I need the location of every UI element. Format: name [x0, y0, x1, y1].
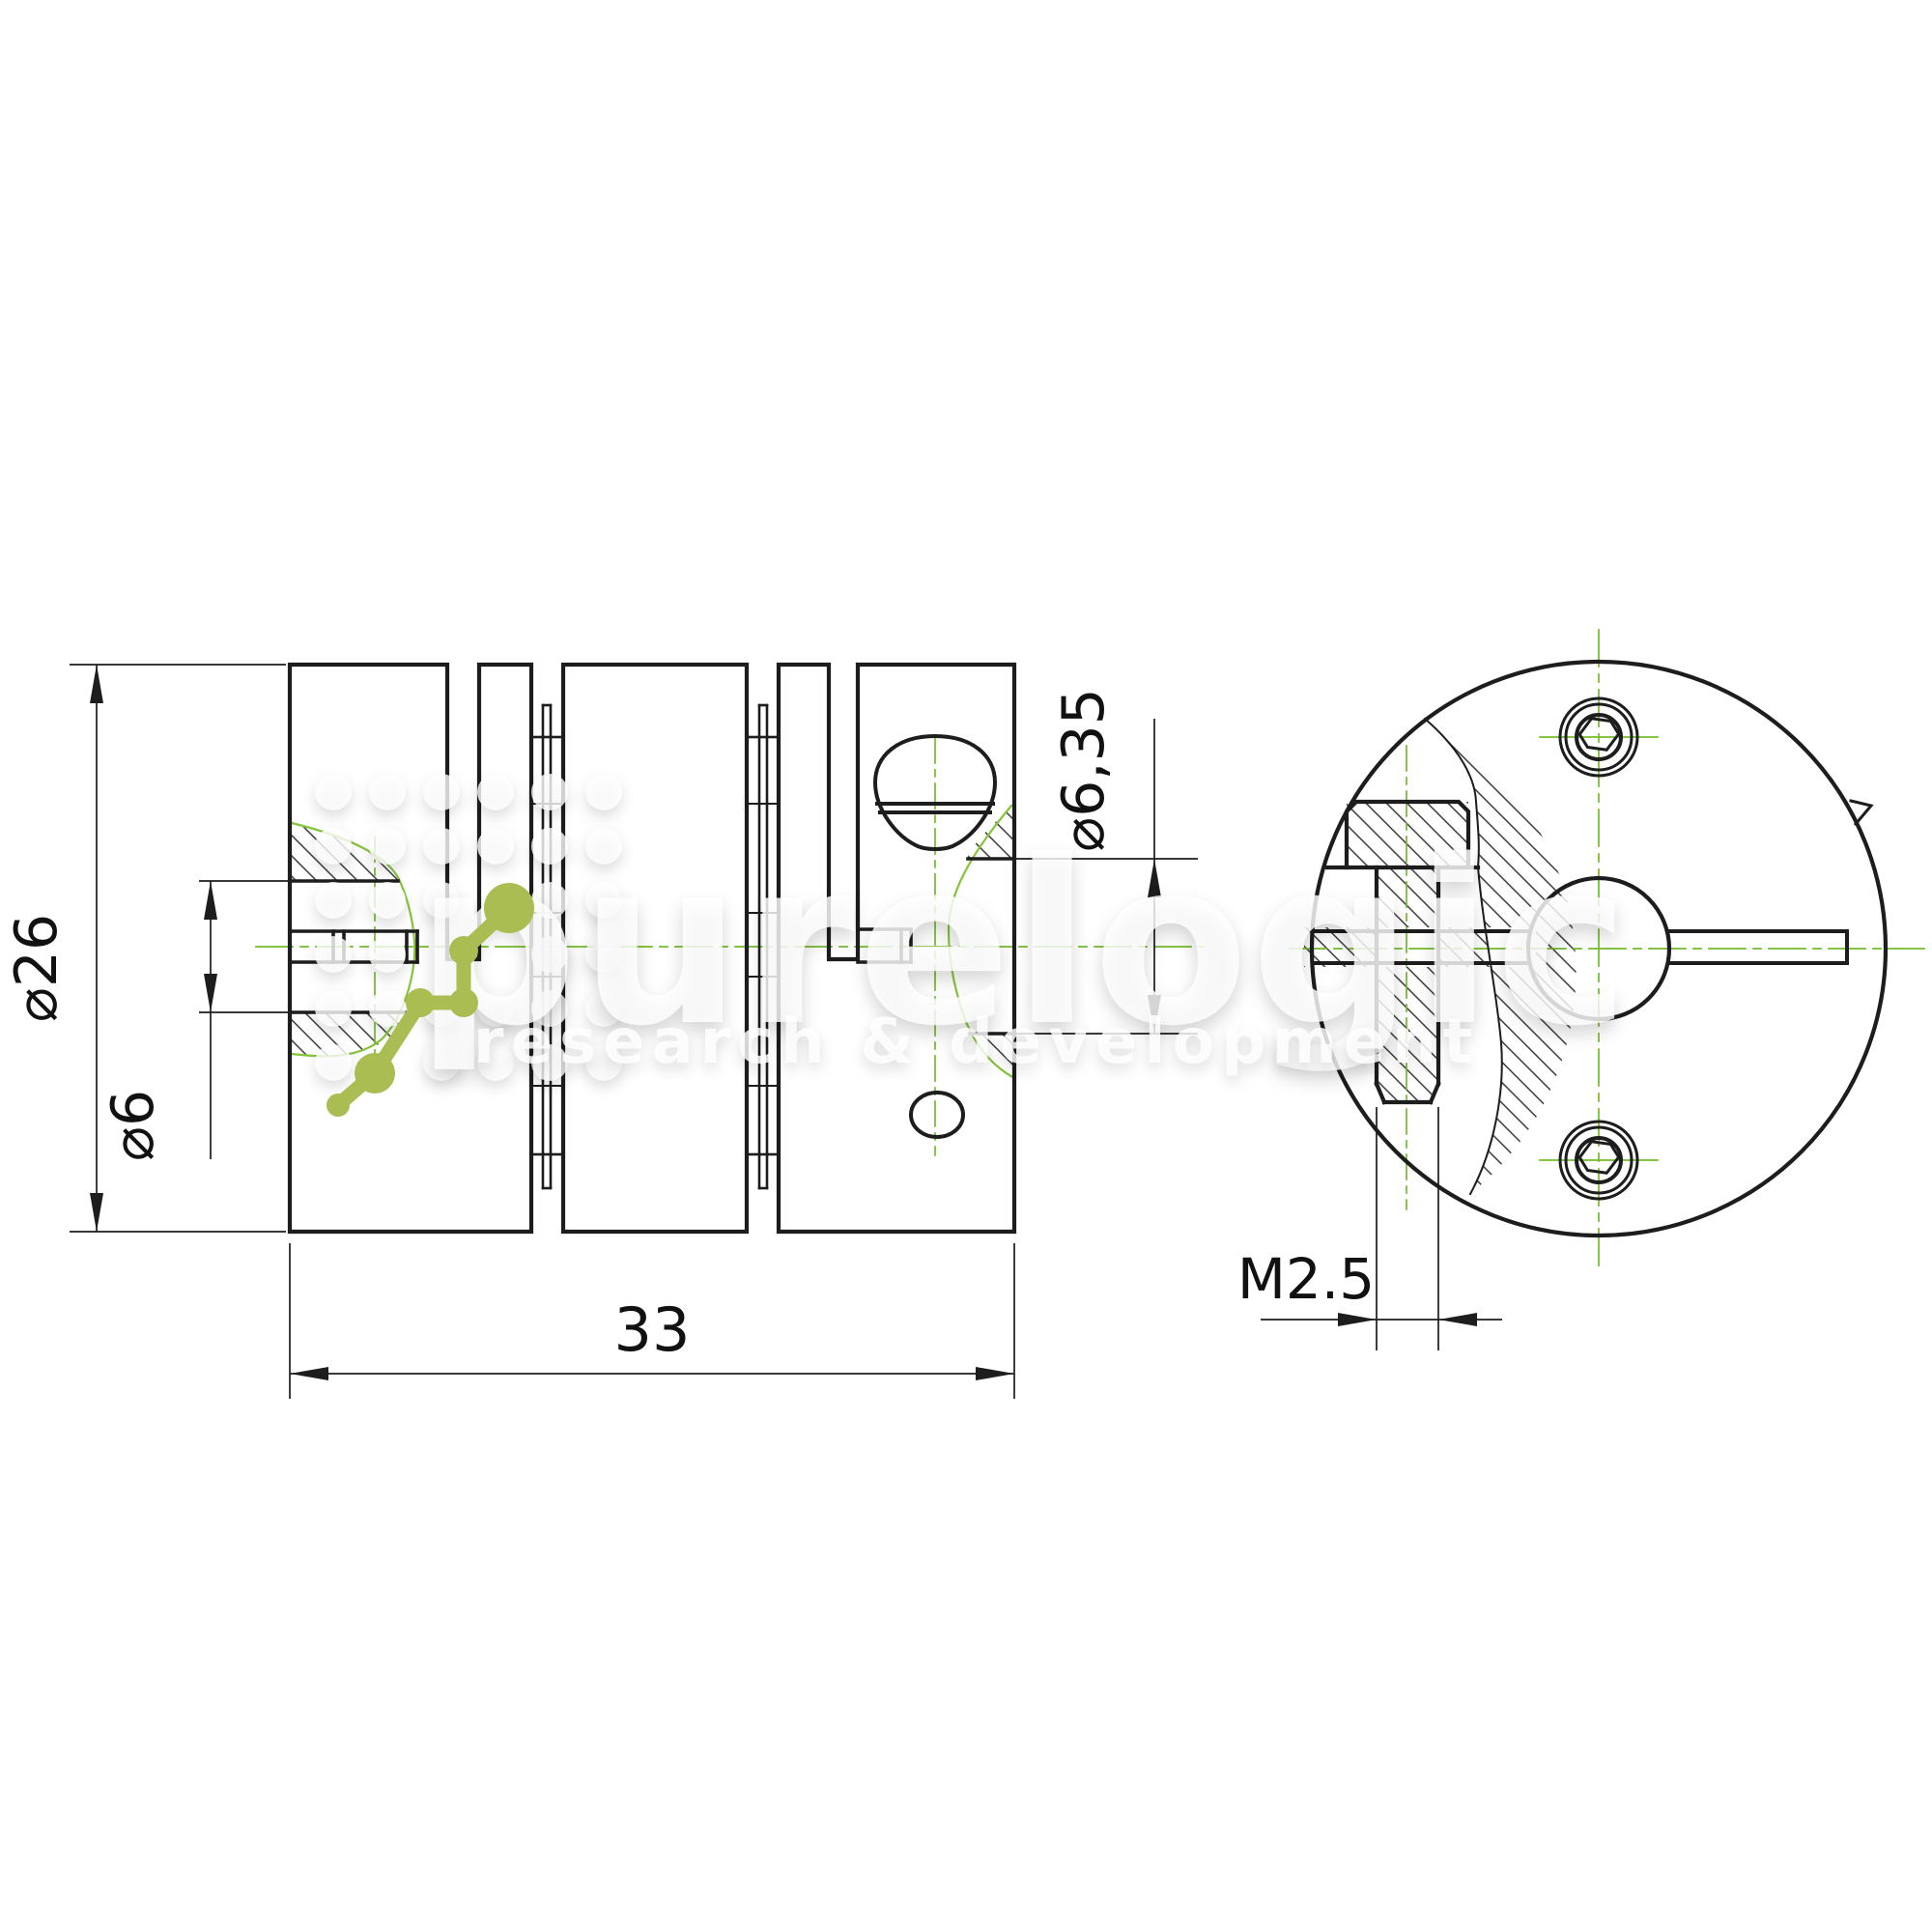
dimension-thread-size: M2.5 [1237, 1107, 1502, 1350]
dimension-label-outer-diameter: ⌀26 [3, 914, 71, 1022]
dimension-label-total-length: 33 [614, 1294, 691, 1365]
dimension-label-thread-size: M2.5 [1237, 1246, 1375, 1312]
watermark-subtitle: research & development [473, 1007, 1479, 1078]
drawing-canvas: ⌀26 ⌀6 33 [0, 0, 1932, 1932]
dimension-label-left-bore: ⌀6 [99, 1090, 167, 1161]
coupling-technical-drawing: ⌀26 ⌀6 33 [0, 0, 1932, 1932]
screw-exit-hole [911, 1093, 963, 1137]
watermark: purelogic research & development [315, 774, 1632, 1117]
dimension-total-length: 33 [290, 1243, 1014, 1399]
dimension-left-bore: ⌀6 [99, 881, 288, 1161]
